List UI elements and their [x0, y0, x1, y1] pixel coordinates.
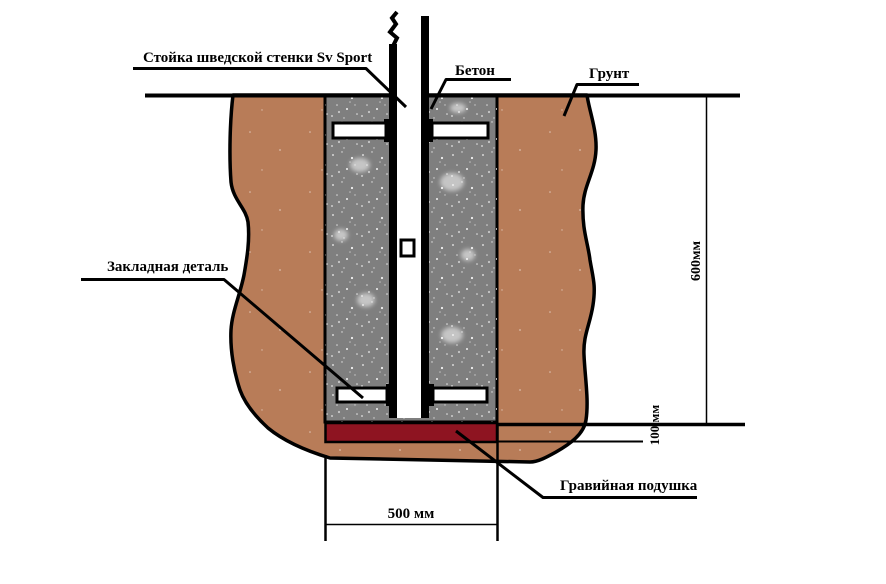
- upper-right-plate: [432, 123, 488, 138]
- embedded-part-label: Закладная деталь: [107, 259, 228, 275]
- gravel-cushion: [326, 423, 498, 442]
- installation-diagram: 600мм 100 мм 500 мм Стойка шведской стен…: [0, 0, 886, 584]
- upper-left-plate: [333, 123, 386, 138]
- gravel-pad-label: Гравийная подушка: [560, 478, 698, 494]
- lower-left-plate: [337, 388, 387, 402]
- pad-thickness-dimension-text: 100 мм: [647, 405, 662, 446]
- post-slot: [401, 240, 414, 256]
- post-label: Стойка шведской стенки Sv Sport: [143, 50, 372, 66]
- diagram-svg: 600мм 100 мм 500 мм Стойка шведской стен…: [0, 0, 886, 584]
- post: [389, 12, 429, 418]
- post-right-edge: [421, 16, 429, 418]
- depth-dimension-text: 600мм: [689, 241, 704, 282]
- concrete-label: Бетон: [455, 63, 495, 79]
- lower-right-plate: [433, 388, 487, 402]
- soil-label: Грунт: [589, 66, 630, 82]
- post-left-edge: [389, 44, 397, 418]
- pit-width-dimension-text: 500 мм: [388, 506, 435, 522]
